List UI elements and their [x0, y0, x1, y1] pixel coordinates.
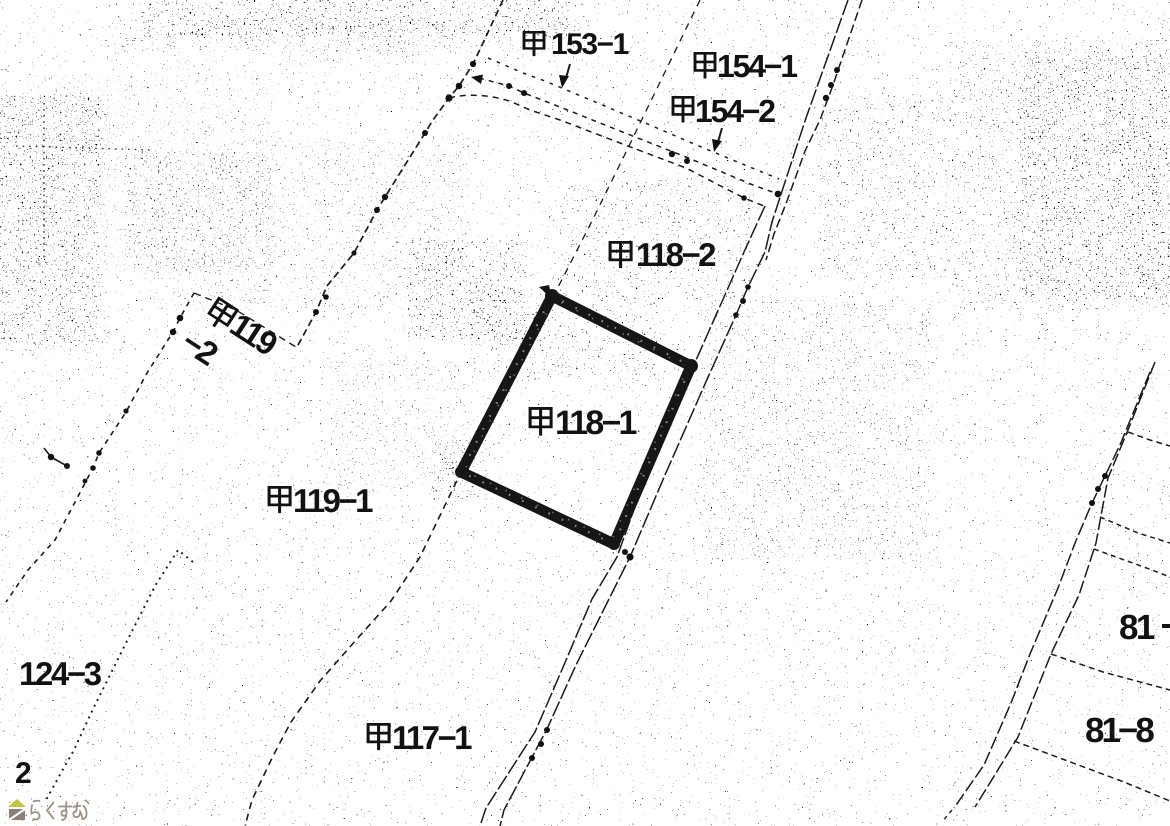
svg-text:119−1: 119−1: [293, 482, 373, 519]
svg-text:81: 81: [1119, 608, 1155, 647]
svg-text:118−2: 118−2: [636, 236, 716, 273]
svg-text:153−1: 153−1: [551, 28, 629, 61]
svg-text:124−3: 124−3: [19, 655, 102, 692]
svg-text:2: 2: [15, 757, 32, 790]
svg-text:118−1: 118−1: [555, 404, 637, 442]
svg-text:154−2: 154−2: [695, 93, 775, 129]
svg-text:81−8: 81−8: [1085, 711, 1154, 750]
svg-text:154−1: 154−1: [717, 48, 797, 84]
svg-text:117−1: 117−1: [392, 719, 472, 756]
